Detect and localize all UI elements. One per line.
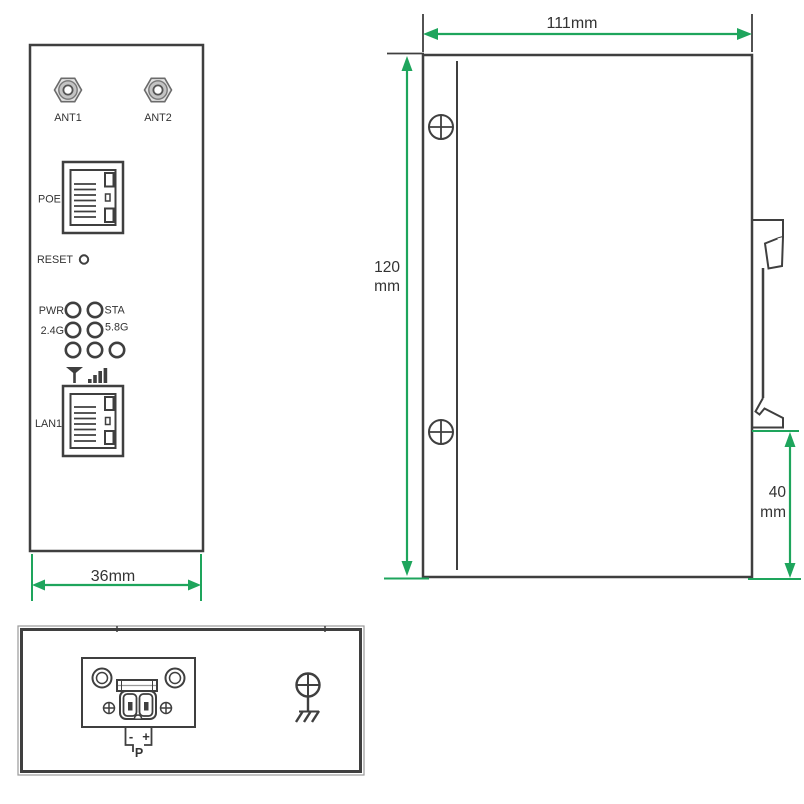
front-width-value: 36mm bbox=[91, 568, 135, 585]
din-rail-clip bbox=[752, 220, 783, 428]
ant1-label: ANT1 bbox=[54, 112, 82, 124]
rj45-pins bbox=[74, 184, 96, 217]
24g-led-label: 2.4G bbox=[41, 325, 64, 337]
58g-led-label: 5.8G bbox=[105, 322, 128, 334]
led-indicator bbox=[88, 323, 102, 337]
screw-icon bbox=[429, 420, 453, 444]
ant1-connector bbox=[55, 78, 82, 101]
poe-label: POE bbox=[38, 194, 61, 206]
arrow-left-icon bbox=[423, 28, 438, 40]
din-clip-latch bbox=[753, 398, 784, 428]
arrow-up-icon bbox=[785, 432, 796, 447]
front-width-dimension: 36mm bbox=[32, 554, 201, 601]
led-indicator bbox=[88, 303, 102, 317]
polarity-positive-label: + bbox=[142, 729, 150, 744]
lan1-label: LAN1 bbox=[35, 418, 62, 430]
din-clip-hook bbox=[765, 237, 783, 269]
pwr-led-label: PWR bbox=[39, 305, 64, 317]
side-height-unit: mm bbox=[374, 278, 400, 295]
front-view: ANT1 ANT2 POE RESET bbox=[30, 45, 203, 601]
side-height-value: 120 bbox=[374, 259, 400, 276]
side-height-dimension: 120 mm bbox=[374, 54, 429, 579]
side-body-outline bbox=[423, 55, 752, 577]
arrow-left-icon bbox=[32, 580, 45, 591]
reset-label: RESET bbox=[37, 254, 73, 266]
screw-icon bbox=[429, 115, 453, 139]
lan1-port bbox=[63, 386, 123, 456]
arrow-right-icon bbox=[188, 580, 201, 591]
power-label: P bbox=[135, 746, 143, 760]
arrow-up-icon bbox=[402, 56, 413, 71]
led-indicator bbox=[88, 343, 102, 357]
led-indicator bbox=[110, 343, 124, 357]
arrow-down-icon bbox=[785, 563, 796, 578]
arrow-down-icon bbox=[402, 561, 413, 576]
arrow-right-icon bbox=[737, 28, 752, 40]
rj45-pins bbox=[74, 407, 96, 441]
side-width-value: 111mm bbox=[547, 15, 598, 32]
ant2-connector bbox=[145, 78, 172, 101]
poe-port bbox=[63, 162, 123, 233]
led-indicator bbox=[66, 303, 80, 317]
bottom-view: - + P bbox=[18, 626, 364, 775]
polarity-negative-label: - bbox=[129, 729, 133, 744]
side-view: 111mm 120 mm 40 mm bbox=[374, 14, 801, 579]
led-indicator bbox=[66, 343, 80, 357]
ant2-label: ANT2 bbox=[144, 112, 172, 124]
technical-drawing-page: ANT1 ANT2 POE RESET bbox=[0, 0, 804, 804]
sta-led-label: STA bbox=[105, 305, 126, 317]
screw-icon bbox=[104, 703, 115, 714]
device-dimension-drawing: ANT1 ANT2 POE RESET bbox=[0, 0, 804, 804]
din-offset-value: 40 bbox=[769, 484, 787, 501]
din-offset-dimension: 40 mm bbox=[748, 431, 801, 579]
screw-icon bbox=[161, 703, 172, 714]
led-indicator bbox=[66, 323, 80, 337]
side-width-dimension: 111mm bbox=[423, 14, 752, 52]
din-offset-unit: mm bbox=[760, 504, 786, 521]
